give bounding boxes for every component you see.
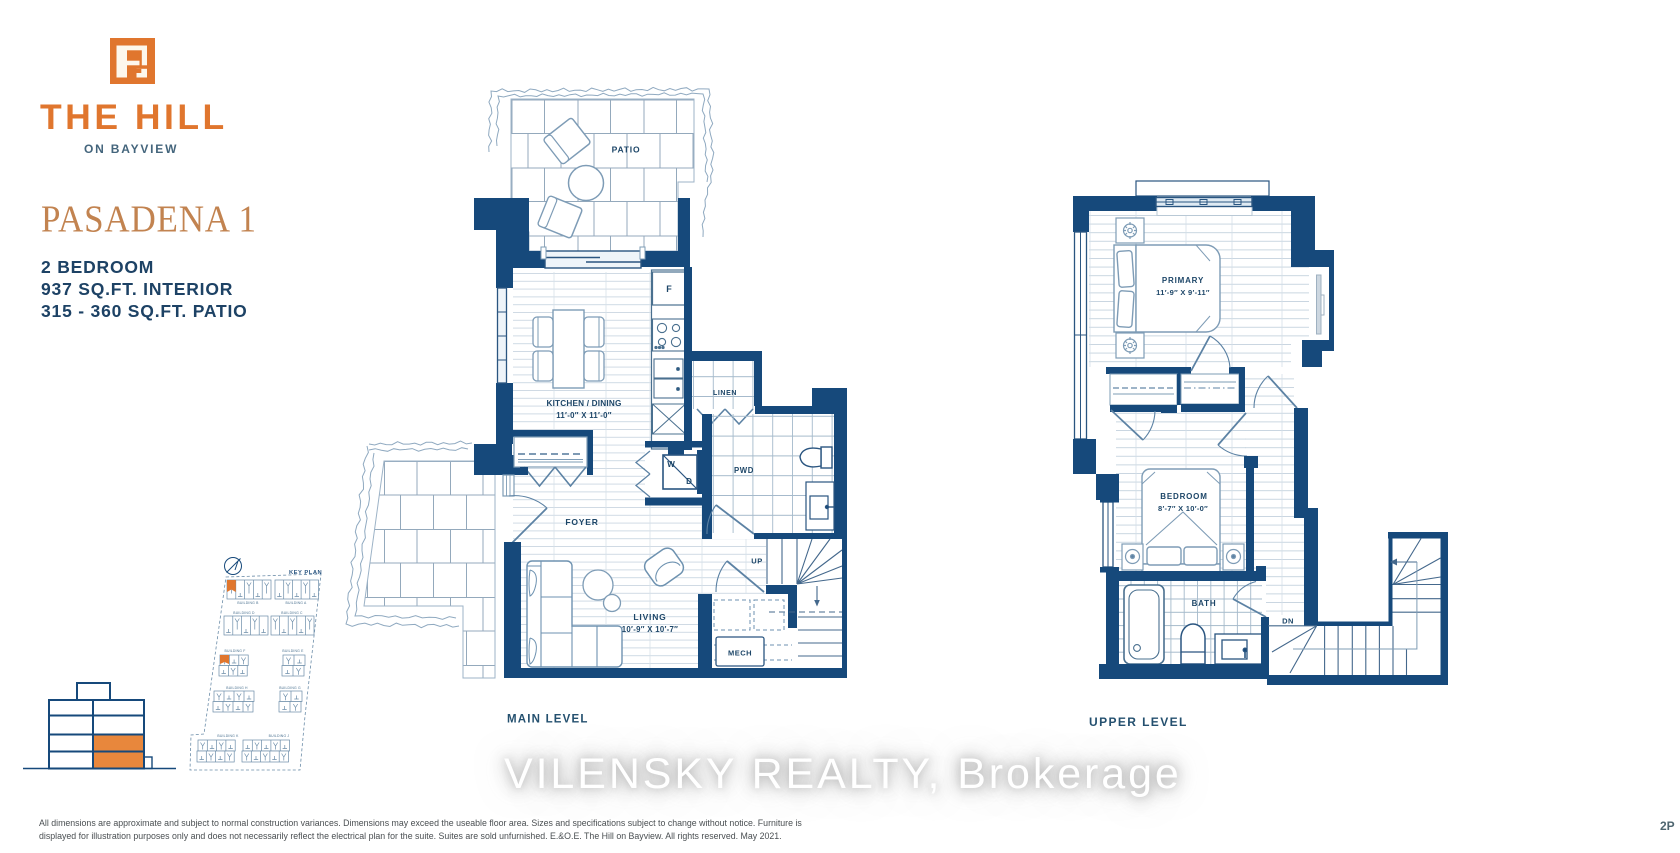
svg-text:MAIN LEVEL: MAIN LEVEL	[507, 714, 589, 726]
svg-text:BUILDING C: BUILDING C	[281, 611, 303, 615]
svg-text:BUILDING D: BUILDING D	[233, 611, 255, 615]
svg-text:8′-7″ X 10′-0″: 8′-7″ X 10′-0″	[1158, 504, 1208, 513]
svg-text:PWD: PWD	[734, 466, 754, 475]
svg-text:BUILDING B: BUILDING B	[237, 601, 259, 605]
svg-text:KITCHEN / DINING: KITCHEN / DINING	[546, 399, 621, 408]
svg-text:BUILDING H: BUILDING H	[226, 686, 248, 690]
svg-text:BEDROOM: BEDROOM	[1160, 492, 1207, 501]
svg-text:FOYER: FOYER	[565, 517, 598, 527]
svg-text:BATH: BATH	[1192, 599, 1217, 608]
svg-text:D: D	[686, 477, 692, 486]
svg-text:11′-0″ X 11′-0″: 11′-0″ X 11′-0″	[556, 411, 612, 420]
svg-text:LIVING: LIVING	[633, 612, 666, 622]
svg-text:UPPER LEVEL: UPPER LEVEL	[1089, 715, 1188, 729]
svg-text:KEY PLAN: KEY PLAN	[289, 570, 322, 576]
svg-text:UP: UP	[751, 557, 762, 566]
svg-text:PRIMARY: PRIMARY	[1162, 276, 1204, 285]
svg-text:10′-9″ X 10′-7″: 10′-9″ X 10′-7″	[622, 625, 678, 634]
svg-text:BUILDING J: BUILDING J	[269, 734, 290, 738]
svg-text:BUILDING F: BUILDING F	[224, 649, 245, 653]
svg-text:F: F	[666, 284, 672, 294]
svg-text:BUILDING A: BUILDING A	[285, 601, 307, 605]
svg-text:LINEN: LINEN	[713, 390, 737, 397]
svg-text:DN: DN	[1282, 617, 1294, 626]
svg-text:W: W	[667, 460, 675, 469]
svg-text:BUILDING K: BUILDING K	[217, 734, 239, 738]
svg-text:PATIO: PATIO	[612, 145, 641, 155]
svg-text:BUILDING E: BUILDING E	[282, 649, 304, 653]
svg-text:MECH: MECH	[728, 649, 752, 658]
svg-text:BUILDING G: BUILDING G	[279, 686, 301, 690]
svg-text:11′-9″ X 9′-11″: 11′-9″ X 9′-11″	[1156, 288, 1210, 297]
